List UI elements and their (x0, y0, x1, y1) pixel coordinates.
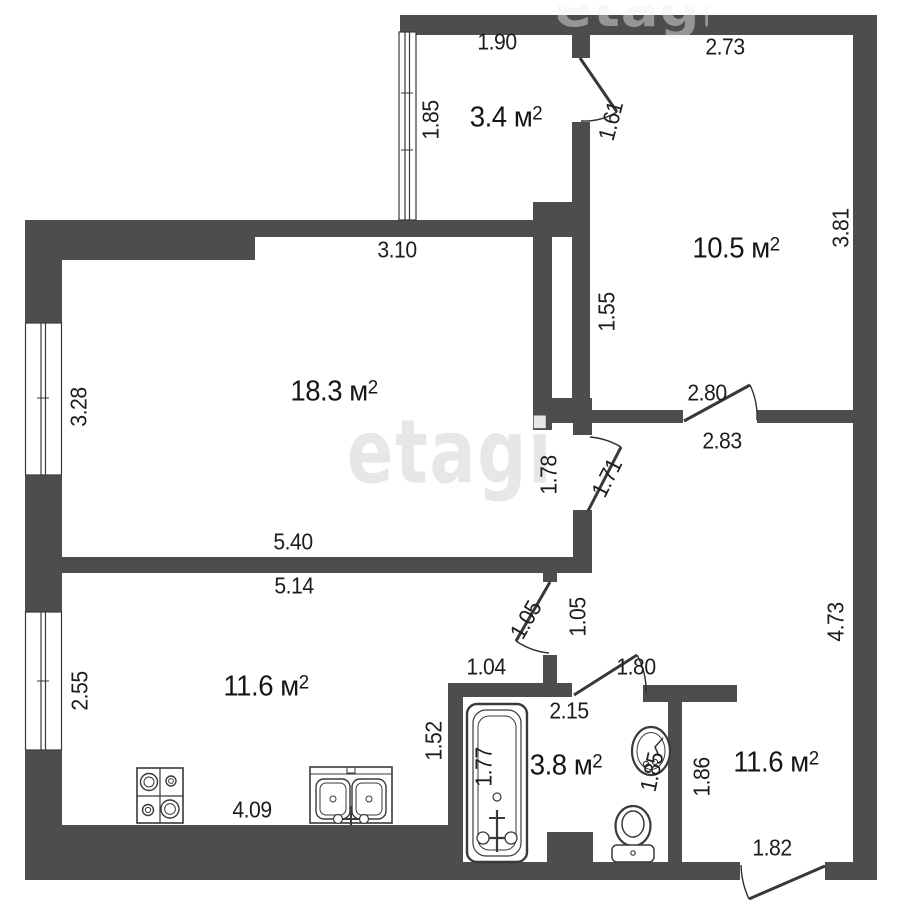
wall-segment (543, 570, 557, 582)
kitchen-sink-icon (310, 767, 392, 825)
wall-segment (25, 825, 463, 880)
wall-segment (547, 832, 593, 863)
room-area-label-entry-hall: 11.6 м2 (733, 749, 818, 778)
dim-label-2.80: 2.80 (687, 382, 726, 405)
watermark: etagi (347, 400, 553, 503)
dim-label-2.55: 2.55 (69, 671, 92, 710)
floor-plan: etagi etagi (0, 0, 900, 900)
dim-label-1.52: 1.52 (423, 721, 446, 760)
dim-label-1.86: 1.86 (691, 757, 714, 796)
wall-segment (400, 15, 877, 35)
dim-label-5.14: 5.14 (274, 575, 313, 598)
wall-segment (572, 30, 590, 58)
dim-label-3.81: 3.81 (830, 208, 853, 247)
wall-segment (25, 557, 592, 573)
wall-segment (668, 685, 682, 862)
dim-label-1.77: 1.77 (473, 747, 496, 786)
room-area-label-bathroom: 3.8 м2 (530, 752, 602, 781)
room-area-label-balcony: 3.4 м2 (470, 104, 542, 133)
dim-label-4.73: 4.73 (825, 602, 848, 641)
room-area-label-kitchen: 11.6 м2 (223, 673, 308, 702)
dim-label-1.82: 1.82 (752, 837, 791, 860)
wall-segment (590, 410, 683, 423)
dim-label-1.85: 1.85 (420, 100, 443, 139)
dim-label-1.04: 1.04 (466, 656, 505, 679)
wall-segment (448, 683, 572, 697)
dim-label-2.73: 2.73 (705, 36, 744, 59)
wall-segment (853, 15, 877, 880)
door-swing-icon (741, 865, 825, 899)
dim-label-1.05: 1.05 (506, 597, 546, 643)
dim-label-2.15: 2.15 (549, 700, 588, 723)
dim-label-1.80: 1.80 (616, 656, 655, 679)
wall-segment (25, 220, 62, 880)
wall-segment (572, 122, 590, 423)
wall-segment (62, 220, 552, 237)
wall-segment (825, 862, 877, 880)
dim-label-3.10: 3.10 (377, 239, 416, 262)
dim-label-1.78: 1.78 (538, 455, 561, 494)
dim-label-1.85: 1.85 (637, 750, 668, 793)
room-area-label-living-room: 18.3 м2 (290, 378, 377, 407)
dim-label-1.61: 1.61 (595, 99, 627, 143)
toilet-icon (612, 806, 654, 862)
dim-label-3.28: 3.28 (68, 387, 91, 426)
dim-label-1.71: 1.71 (588, 455, 626, 500)
stove-icon (137, 768, 183, 823)
dim-label-1.05: 1.05 (567, 597, 590, 636)
wall-segment (448, 862, 740, 880)
room-area-label-room-top-right: 10.5 м2 (692, 235, 779, 264)
dim-label-1.90: 1.90 (477, 31, 516, 54)
wall-segment (448, 683, 463, 863)
dim-label-5.40: 5.40 (273, 531, 312, 554)
wall-segment (573, 423, 592, 435)
window-icon (399, 32, 416, 220)
wall-segment (643, 685, 737, 702)
dim-label-4.09: 4.09 (232, 799, 271, 822)
wall-segment (757, 410, 877, 423)
dim-label-1.55: 1.55 (596, 292, 619, 331)
dim-label-2.83: 2.83 (702, 430, 741, 453)
